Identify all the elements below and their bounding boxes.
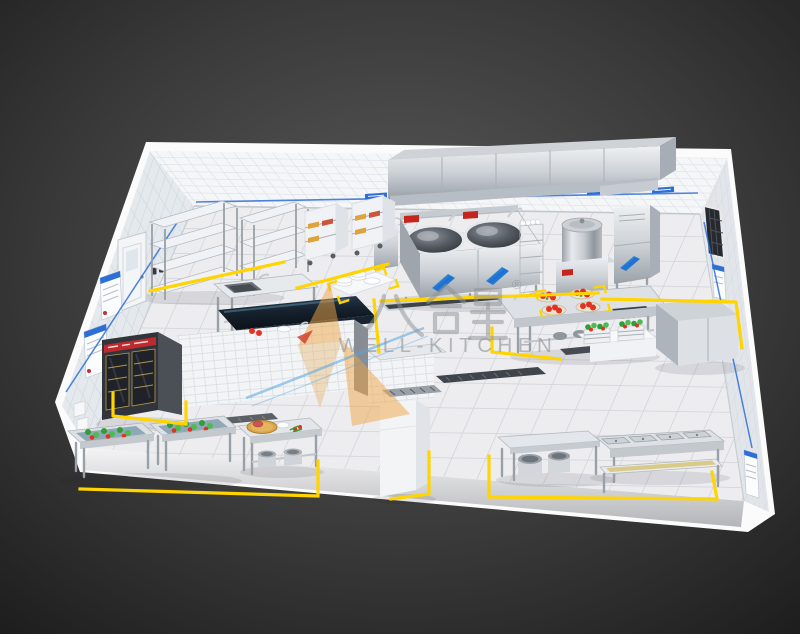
right-wall-poster-2 bbox=[744, 450, 759, 498]
red-ingredient bbox=[249, 328, 255, 334]
white-bowl bbox=[278, 326, 291, 332]
lid-knob bbox=[580, 219, 585, 224]
control-display-left bbox=[404, 215, 419, 223]
door-window bbox=[126, 248, 138, 272]
red-ingredient bbox=[256, 330, 262, 336]
registered-mark: ® bbox=[512, 277, 522, 292]
render-canvas: 八合星 ® WELL-KITCHEN bbox=[0, 0, 800, 634]
right-wall-vent-window bbox=[704, 206, 724, 258]
kitchen-3d-render: 八合星 ® WELL-KITCHEN bbox=[0, 0, 800, 634]
entry-door bbox=[118, 232, 146, 312]
raw-meat bbox=[253, 421, 263, 427]
wok-burner-right bbox=[467, 222, 521, 248]
white-bowl bbox=[277, 422, 289, 428]
stainless-work-cabinet bbox=[656, 299, 738, 366]
kettle-display bbox=[562, 269, 573, 276]
control-display-right bbox=[463, 211, 478, 219]
watermark-brand-en: WELL-KITCHEN bbox=[339, 334, 558, 357]
